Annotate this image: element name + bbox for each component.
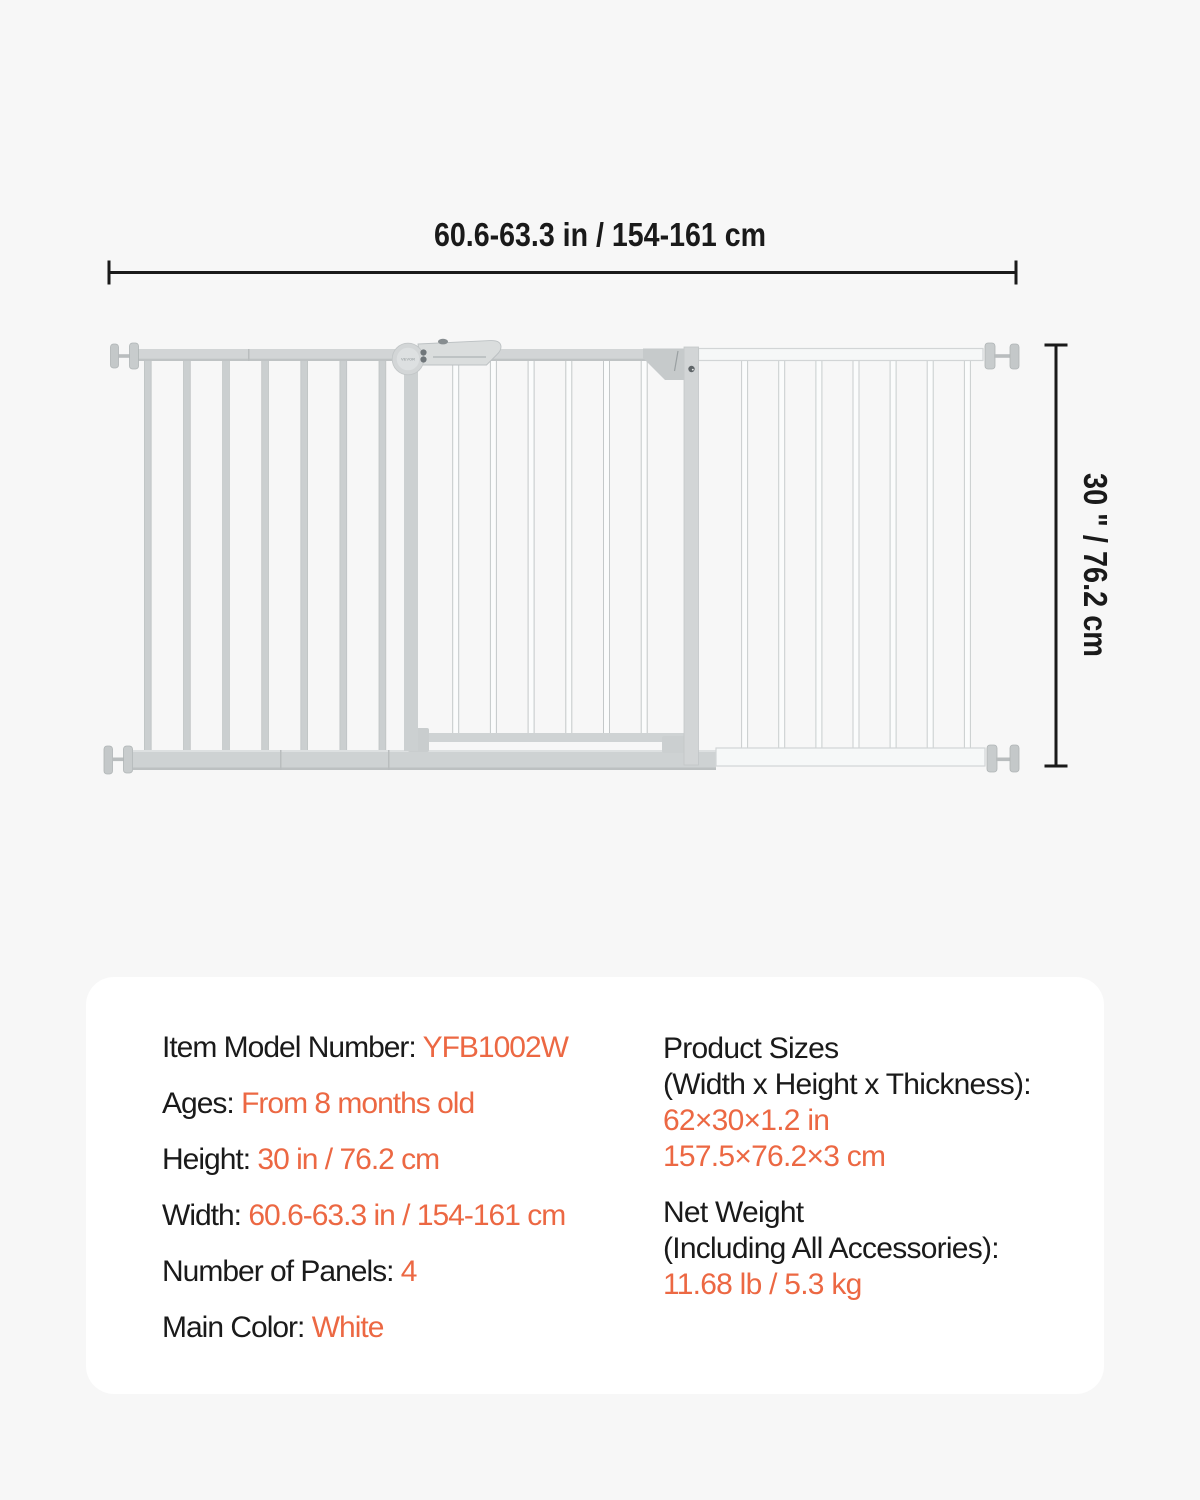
svg-text:30 " / 76.2 cm: 30 " / 76.2 cm — [1076, 473, 1113, 657]
svg-text:VEVOR: VEVOR — [401, 357, 415, 362]
svg-text:60.6-63.3 in / 154-161 cm: 60.6-63.3 in / 154-161 cm — [434, 217, 766, 254]
